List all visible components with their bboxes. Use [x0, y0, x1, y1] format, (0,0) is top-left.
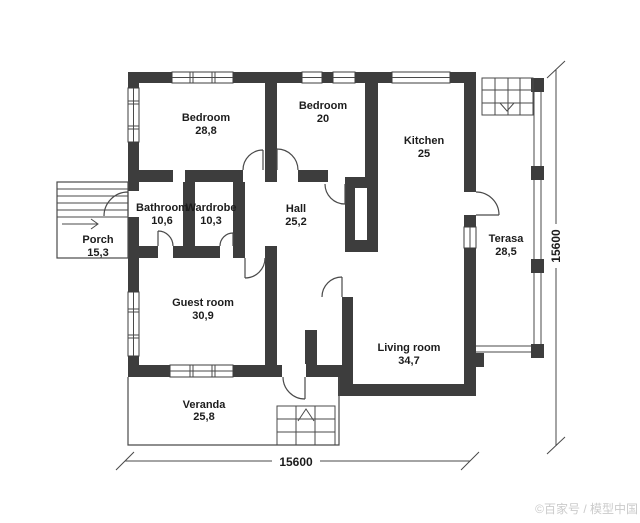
dimension-bottom: 15600: [116, 452, 479, 470]
window: [172, 72, 233, 83]
room-area-bedroom-1: 28,8: [195, 125, 216, 137]
terasa-stairs: [482, 78, 533, 115]
interior-walls: [139, 83, 378, 396]
wall-segment: [139, 246, 158, 258]
room-area-bedroom-2: 20: [317, 113, 329, 125]
door-opening: [282, 364, 306, 378]
window: [170, 365, 233, 377]
wall-segment: [305, 330, 317, 377]
door-arc-guest-room: [245, 258, 265, 278]
wall-segment: [173, 246, 220, 258]
wall-segment: [233, 246, 245, 258]
dimension-label-bottom: 15600: [279, 455, 313, 469]
door-arc-bedroom-1: [243, 150, 263, 170]
wall-segment: [139, 170, 173, 182]
wall-segment: [476, 353, 484, 367]
wall-segment: [233, 182, 245, 246]
door-arc-terasa: [476, 192, 499, 215]
window: [464, 227, 476, 248]
porch-steps: [57, 189, 128, 217]
wall-segment: [345, 177, 378, 188]
window: [392, 72, 450, 83]
porch-direction-arrow-icon: [62, 219, 98, 229]
window: [302, 72, 322, 83]
room-name-bedroom-2: Bedroom: [299, 100, 348, 112]
room-name-kitchen: Kitchen: [404, 135, 445, 147]
wall-segment: [183, 182, 195, 246]
room-name-living-room: Living room: [378, 342, 441, 354]
room-name-hall: Hall: [286, 203, 306, 215]
wall-segment: [298, 170, 328, 182]
terasa-railing: [476, 78, 541, 357]
room-name-terasa: Terasa: [489, 233, 525, 245]
room-area-bathroom: 10,6: [151, 215, 172, 227]
door-arc-wardrobe: [220, 233, 233, 246]
wall-segment: [367, 188, 378, 245]
wall-segment: [365, 83, 378, 177]
door-opening: [463, 192, 477, 215]
watermark: ©百家号 / 模型中国: [535, 501, 638, 516]
wall-segment: [342, 297, 353, 396]
door-arc-hall: [325, 184, 345, 204]
room-area-kitchen: 25: [418, 148, 430, 160]
door-arc-bedroom-2: [277, 149, 298, 170]
floor-plan-drawing: 15600 15600 Bedroom 28,8 Bedroom 20 Kitc…: [0, 0, 640, 523]
room-area-wardrobe: 10,3: [200, 215, 221, 227]
window: [128, 88, 139, 142]
room-name-bedroom-1: Bedroom: [182, 112, 231, 124]
room-name-veranda: Veranda: [183, 399, 227, 411]
wall-segment: [265, 83, 277, 182]
wall-segment: [345, 188, 355, 245]
room-area-porch: 15,3: [87, 247, 108, 259]
door-arc-veranda: [283, 377, 305, 399]
doors: [104, 149, 499, 399]
terasa-column: [531, 344, 544, 358]
wall-segment: [265, 246, 277, 377]
terasa-structure: [476, 78, 544, 358]
wall-segment: [345, 240, 378, 252]
veranda-stairs: [277, 406, 335, 445]
room-area-living-room: 34,7: [398, 355, 419, 367]
door-arc-bathroom: [158, 231, 173, 246]
room-name-guest-room: Guest room: [172, 297, 234, 309]
dimension-right: 15600: [547, 61, 565, 454]
door-arc-living-room: [322, 277, 342, 297]
window: [128, 292, 139, 356]
veranda-structure: [128, 377, 339, 445]
room-area-veranda: 25,8: [193, 411, 214, 423]
room-name-porch: Porch: [82, 234, 113, 246]
room-area-hall: 25,2: [285, 216, 306, 228]
terasa-column: [531, 166, 544, 180]
room-area-guest-room: 30,9: [192, 310, 213, 322]
floor-plan-canvas: 15600 15600 Bedroom 28,8 Bedroom 20 Kitc…: [0, 0, 640, 523]
dimension-label-right: 15600: [549, 229, 563, 263]
room-name-wardrobe: Wardrobe: [186, 202, 237, 214]
wall-segment: [185, 170, 243, 182]
terasa-column: [531, 259, 544, 273]
stairs-down-arrow-icon: [500, 103, 514, 111]
room-name-bathroom: Bathroom: [136, 202, 188, 214]
window: [333, 72, 355, 83]
room-area-terasa: 28,5: [495, 246, 516, 258]
wall-segment: [342, 384, 476, 396]
